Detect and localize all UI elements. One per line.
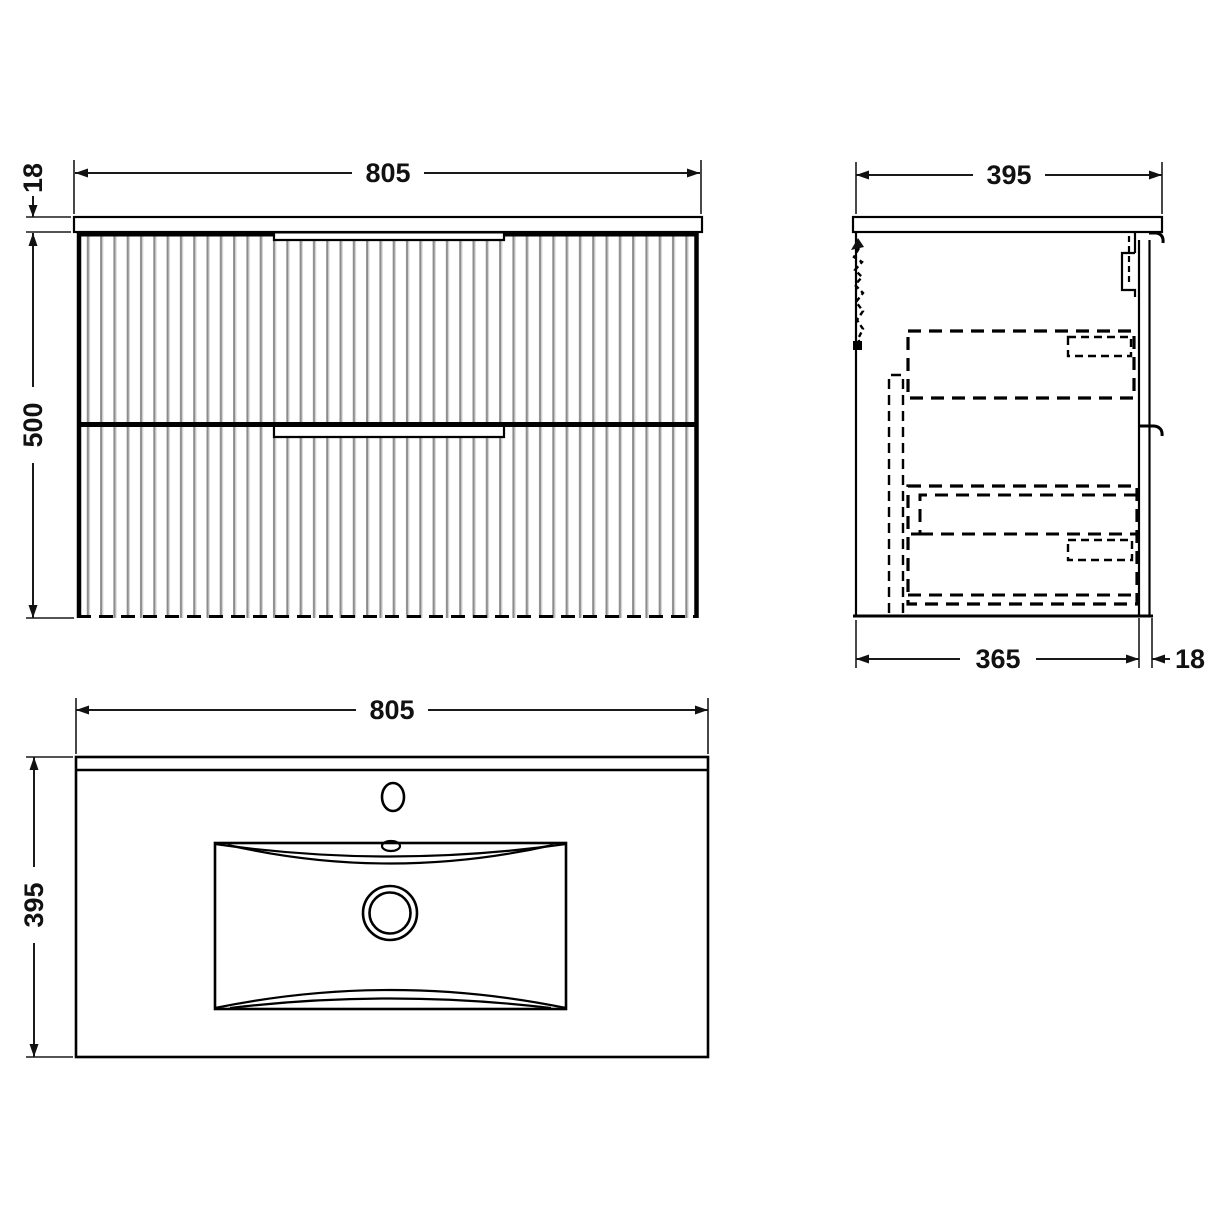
side-worktop (853, 217, 1162, 232)
arrowhead-down (29, 205, 38, 217)
plan-depth-label: 395 (19, 882, 49, 927)
lower-box-inner (908, 495, 1137, 534)
plan-width-dimension: 805 (76, 695, 708, 754)
front-height-dimension: 500 (18, 233, 74, 618)
waste-outer-ring (363, 886, 417, 940)
side-lower-drawer-box (908, 486, 1137, 604)
arrowhead-down (30, 1044, 39, 1057)
side-upper-drawer-box (908, 331, 1134, 398)
side-lower-drawer-runner (1068, 540, 1132, 560)
plan-worktop-outline (76, 757, 708, 1057)
side-service-void-outline (889, 375, 903, 613)
front-upper-drawer-handle-recess (274, 234, 504, 241)
front-drawer-divider (77, 422, 698, 427)
side-depth-label: 395 (986, 160, 1031, 190)
arrowhead-up (29, 233, 38, 246)
side-upper-handle-profile (1149, 233, 1163, 243)
tap-hole (382, 783, 404, 811)
arrowhead-right (695, 706, 708, 715)
basin-outline (215, 843, 566, 1009)
side-depth-dimension: 395 (856, 160, 1162, 214)
lower-box-outer (908, 486, 1137, 604)
front-worktop (74, 217, 702, 232)
arrowhead-left (75, 169, 88, 178)
arrowhead-right (687, 169, 700, 178)
arrowhead-left (856, 655, 869, 664)
recess-fill (274, 427, 504, 437)
side-bottom-dimensions: 365 18 (856, 618, 1205, 674)
side-view: 395 365 18 (851, 160, 1205, 674)
front-view: 805 18 500 (18, 158, 702, 618)
side-upper-drawer-runner (1068, 337, 1131, 356)
arrowhead-right (1126, 655, 1139, 664)
front-width-label: 805 (365, 158, 410, 188)
basin-top-slope-inner (228, 845, 553, 864)
front-width-dimension: 805 (74, 158, 701, 214)
waste-inner-ring (370, 893, 411, 934)
arrowhead-down (29, 605, 38, 618)
hanger-arrowhead (851, 238, 864, 250)
arrowhead-left18 (1152, 655, 1165, 664)
side-wall-hanger-detail (851, 238, 864, 350)
plan-view: 805 395 (19, 695, 708, 1057)
plan-depth-dimension: 395 (19, 757, 73, 1057)
plan-width-label: 805 (369, 695, 414, 725)
front-worktop-thickness-label: 18 (18, 163, 48, 193)
hanger-fixing-block (853, 341, 862, 350)
basin-bowl (215, 841, 566, 1009)
front-worktop-thickness-dimension: 18 (18, 163, 71, 232)
basin-bottom-slope-inner (230, 999, 551, 1009)
side-top-fixing-detail (1122, 233, 1135, 297)
arrowhead-left (856, 171, 869, 180)
vanity-dimension-diagram: 805 18 500 (0, 0, 1224, 1224)
technical-drawing-canvas: 805 18 500 (0, 0, 1224, 1224)
side-carcass-depth-label: 365 (975, 644, 1020, 674)
arrowhead-left (76, 706, 89, 715)
front-lower-drawer-handle-recess (274, 427, 504, 437)
side-front-thickness-label: 18 (1175, 644, 1205, 674)
arrowhead-right (1149, 171, 1162, 180)
front-height-label: 500 (18, 402, 48, 447)
arrowhead-up (30, 757, 39, 770)
